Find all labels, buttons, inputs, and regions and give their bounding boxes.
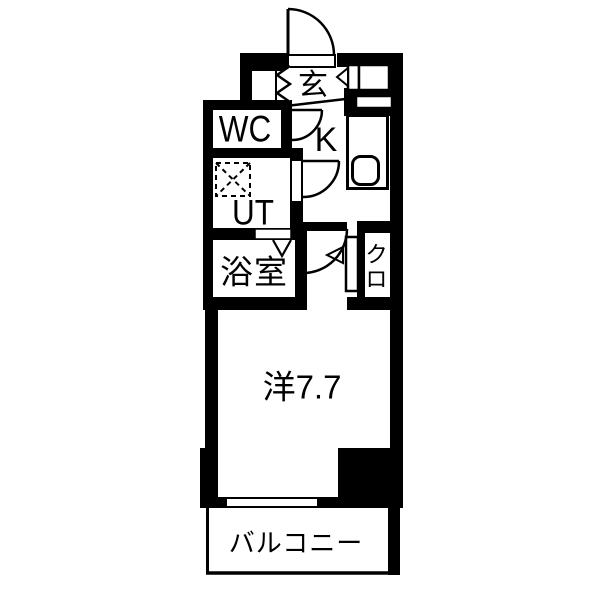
folding-door-icon — [277, 66, 290, 102]
utility-door-arc — [303, 161, 339, 197]
wall-corner-block — [338, 448, 403, 508]
kitchen-sink-icon — [353, 157, 379, 185]
main-room-door-arc — [303, 229, 347, 273]
wall-balcony-right — [388, 508, 400, 575]
utility-label: UT — [232, 196, 274, 231]
closet-door-panel — [346, 237, 358, 291]
wall-closet-top — [357, 221, 403, 233]
shoe-cabinet-door-triangle-icon — [337, 68, 348, 86]
entry-counter-bar — [356, 96, 392, 108]
wall-left — [203, 103, 213, 310]
kitchen-label: K — [315, 123, 338, 157]
balcony-label: バルコニー — [229, 530, 363, 556]
wall-main-top-left — [203, 297, 307, 310]
floorplan-canvas: 玄 WC K UT 浴室 クロ 洋7.7 バルコニー — [0, 0, 600, 600]
wall-main-left-bottom — [200, 448, 218, 508]
wall-main-left — [205, 310, 218, 448]
shoe-cabinet-small — [348, 65, 359, 90]
window — [227, 499, 317, 506]
wc-label: WC — [219, 111, 271, 148]
utility-door-panel — [291, 160, 302, 202]
closet-label: クロ — [363, 242, 386, 292]
shoe-cabinet-large — [359, 65, 389, 90]
entrance-door-sill — [288, 55, 335, 67]
bathroom-label: 浴室 — [220, 256, 288, 289]
wall-wc-right — [281, 102, 292, 152]
wall-upper-left — [240, 53, 252, 108]
washing-machine-icon — [216, 163, 250, 196]
main-room-label: 洋7.7 — [263, 371, 342, 404]
wall-corridor-stub — [303, 222, 347, 231]
genkan-label: 玄 — [298, 71, 328, 101]
wall-main-top-right — [347, 297, 403, 310]
entrance-door-arc — [288, 9, 334, 55]
